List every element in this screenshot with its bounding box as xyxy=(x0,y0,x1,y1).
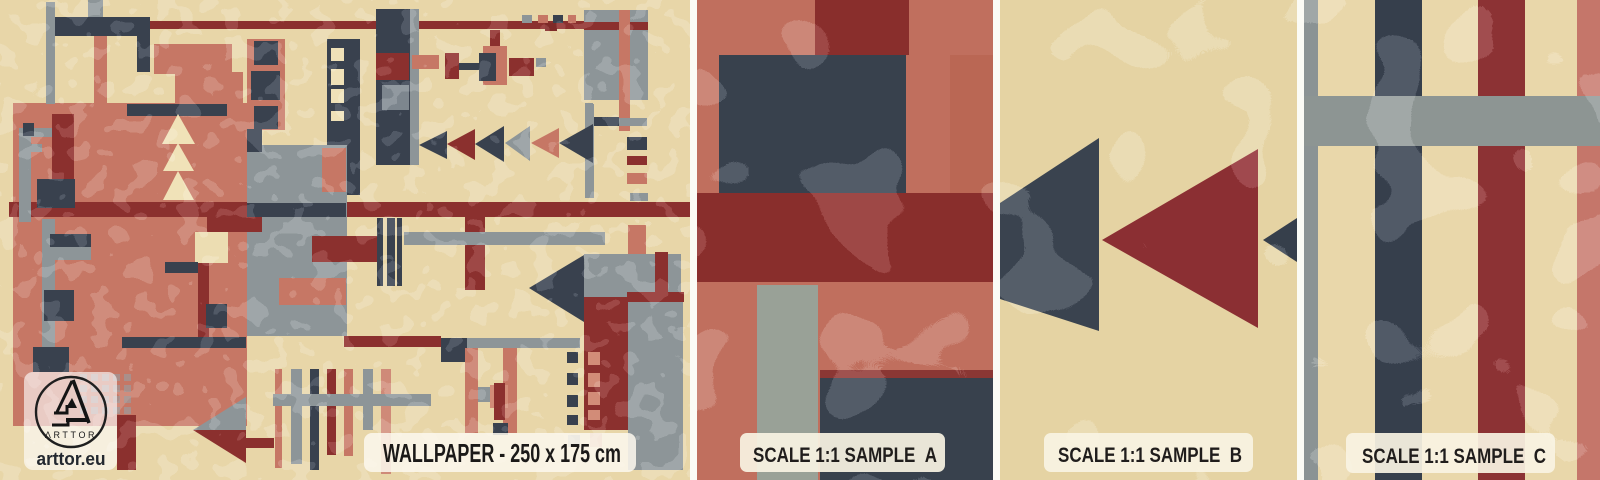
svg-text:arttor.eu: arttor.eu xyxy=(37,449,106,469)
svg-text:SCALE 1:1 SAMPLE A: SCALE 1:1 SAMPLE A xyxy=(753,444,937,467)
svg-text:ΛRTTOR: ΛRTTOR xyxy=(45,430,97,440)
svg-text:SCALE 1:1 SAMPLE B: SCALE 1:1 SAMPLE B xyxy=(1058,444,1242,467)
svg-text:SCALE 1:1 SAMPLE C: SCALE 1:1 SAMPLE C xyxy=(1362,445,1546,468)
svg-text:WALLPAPER - 250 x 175 cm: WALLPAPER - 250 x 175 cm xyxy=(383,438,621,468)
